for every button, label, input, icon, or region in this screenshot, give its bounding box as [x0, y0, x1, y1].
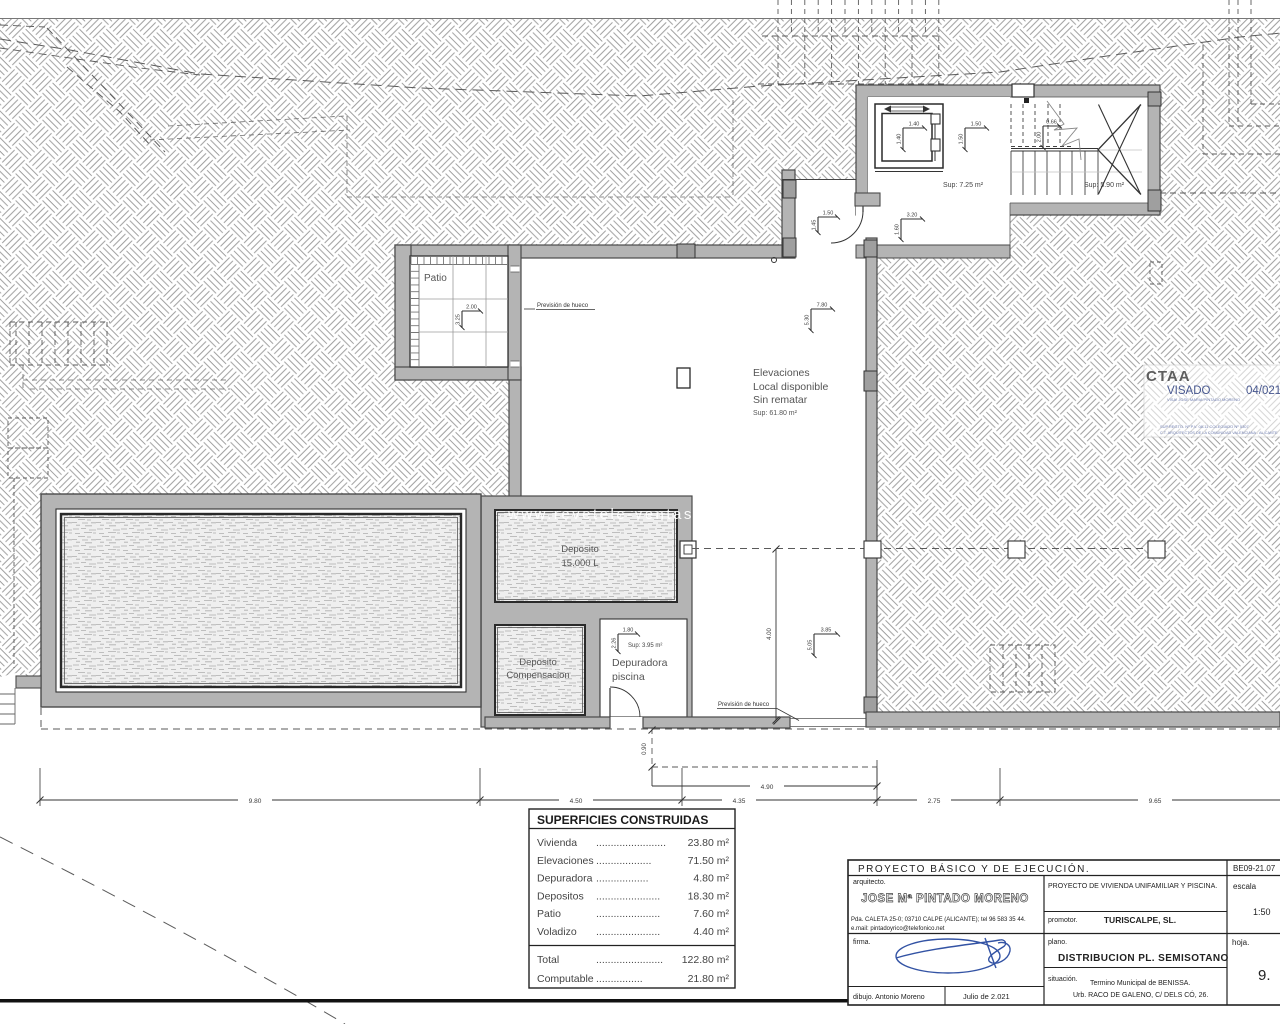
svg-text:................: ................: [596, 973, 643, 985]
svg-text:Voladizo: Voladizo: [537, 926, 577, 938]
svg-text:SUP.REGTO. Nº P.V. 08-11: SUP.REGTO. Nº P.V. 08-11 COLEGIADO Nº 53…: [1160, 424, 1250, 429]
svg-text:Termino Municipal de BENISS: Termino Municipal de BENISSA.: [1090, 980, 1190, 987]
svg-text:Elevaciones: Elevaciones: [537, 855, 594, 867]
svg-text:3.85: 3.85: [821, 628, 832, 634]
svg-text:Previsión de hueco: Previsión de hueco: [537, 303, 589, 309]
svg-text:.......................: .......................: [596, 954, 663, 966]
svg-text:VISADO: VISADO: [1167, 385, 1211, 397]
svg-text:122.80 m²: 122.80 m²: [682, 954, 730, 966]
svg-text:71.50 m²: 71.50 m²: [688, 855, 730, 867]
svg-text:3.20: 3.20: [907, 213, 918, 219]
svg-text:2.26: 2.26: [612, 638, 618, 649]
svg-text:Total: Total: [537, 954, 559, 966]
svg-text:1.50: 1.50: [823, 211, 834, 217]
svg-text:18.30 m²: 18.30 m²: [688, 890, 730, 902]
svg-text:Pda. CALETA 25-0; 03710 CA: Pda. CALETA 25-0; 03710 CALPE (ALICANTE)…: [851, 917, 1026, 923]
svg-text:9.65: 9.65: [1149, 798, 1162, 805]
svg-text:BE09-21.07: BE09-21.07: [1233, 864, 1276, 873]
svg-text:1:50: 1:50: [1253, 907, 1271, 917]
svg-text:........................: ........................: [596, 837, 666, 849]
svg-text:0.90: 0.90: [642, 743, 648, 755]
svg-text:TURISCALPE, SL.: TURISCALPE, SL.: [1104, 915, 1176, 925]
svg-text:1.60: 1.60: [895, 224, 901, 235]
svg-text:2.00: 2.00: [1037, 132, 1043, 143]
svg-text:1.40: 1.40: [909, 122, 920, 128]
svg-text:PROYECTO BÁSICO Y DE EJECU: PROYECTO BÁSICO Y DE EJECUCIÓN.: [858, 862, 1090, 875]
svg-text:1.80: 1.80: [623, 628, 634, 634]
svg-text:3.25: 3.25: [456, 314, 462, 325]
svg-text:4.00: 4.00: [767, 628, 773, 640]
svg-text:SUPERFICIES CONSTRUIDAS: SUPERFICIES CONSTRUIDAS: [537, 813, 708, 827]
svg-text:Compensacion: Compensacion: [506, 670, 569, 681]
svg-text:2.00: 2.00: [466, 305, 477, 311]
svg-text:Elevaciones: Elevaciones: [753, 367, 810, 379]
svg-text:1.40: 1.40: [897, 134, 903, 145]
svg-text:piscina: piscina: [612, 671, 645, 683]
svg-text:Previsión de hueco: Previsión de hueco: [718, 702, 770, 708]
svg-text:9.80: 9.80: [249, 798, 262, 805]
svg-text:1.50: 1.50: [971, 122, 982, 128]
svg-text:VISA! JOSE MARIA PINTADO MOREN: VISA! JOSE MARIA PINTADO MORENO: [1167, 397, 1240, 402]
svg-text:Sin rematar: Sin rematar: [753, 394, 808, 406]
svg-text:4.35: 4.35: [733, 798, 746, 805]
svg-text:21.80 m²: 21.80 m²: [688, 973, 730, 985]
svg-text:JOSE Mª PINTADO MORENO: JOSE Mª PINTADO MORENO: [861, 893, 1029, 905]
svg-text:7.80: 7.80: [817, 303, 828, 309]
svg-text:arquitecto.: arquitecto.: [853, 879, 886, 886]
svg-text:Sup: 61.80 m²: Sup: 61.80 m²: [753, 410, 798, 417]
svg-text:promotor.: promotor.: [1048, 917, 1078, 924]
svg-text:PROYECTO DE VIVIENDA UNIFAM: PROYECTO DE VIVIENDA UNIFAMILIAR Y PISCI…: [1048, 883, 1217, 890]
svg-text:5.05: 5.05: [808, 640, 814, 651]
svg-text:......................: ......................: [596, 908, 660, 920]
svg-text:e.mail: pintadoyrico@telefoni: e.mail: pintadoyrico@telefonico.net: [851, 926, 945, 932]
svg-text:hoja.: hoja.: [1232, 938, 1249, 947]
svg-text:Sup: 5.90 m²: Sup: 5.90 m²: [1084, 182, 1125, 189]
svg-text:situación.: situación.: [1048, 976, 1078, 983]
svg-text:dibujo. Antonio Moreno: dibujo. Antonio Moreno: [853, 994, 925, 1001]
svg-text:CTAA: CTAA: [1146, 368, 1191, 385]
svg-text:Vivienda: Vivienda: [537, 837, 577, 849]
svg-text:23.80 m²: 23.80 m²: [688, 837, 730, 849]
svg-text:Urb. RACO DE GALENO, C/ D: Urb. RACO DE GALENO, C/ DELS CÓ, 26.: [1073, 990, 1208, 999]
svg-text:Patio: Patio: [537, 908, 561, 920]
svg-text:...................: ...................: [596, 855, 651, 867]
svg-text:0.66: 0.66: [1046, 120, 1057, 126]
svg-text:......................: ......................: [596, 890, 660, 902]
svg-text:www.revetele-ventas: www.revetele-ventas: [507, 506, 694, 523]
svg-text:..................: ..................: [596, 873, 649, 885]
svg-text:04/021: 04/021: [1246, 385, 1280, 397]
svg-text:Deposito: Deposito: [519, 657, 557, 668]
svg-text:15.000 L: 15.000 L: [562, 558, 599, 569]
svg-text:5.30: 5.30: [805, 315, 811, 326]
svg-text:Depositos: Depositos: [537, 890, 584, 902]
svg-text:1.50: 1.50: [959, 134, 965, 145]
svg-text:DISTRIBUCION PL. SEMISOTANO: DISTRIBUCION PL. SEMISOTANO: [1058, 953, 1229, 964]
svg-text:7.60 m²: 7.60 m²: [693, 908, 729, 920]
svg-text:Patio: Patio: [424, 273, 447, 284]
svg-text:escala: escala: [1233, 882, 1257, 891]
svg-text:2.75: 2.75: [928, 798, 941, 805]
svg-text:firma.: firma.: [853, 939, 871, 946]
svg-text:Depuradora: Depuradora: [612, 657, 668, 669]
svg-text:1.45: 1.45: [812, 220, 818, 231]
svg-text:Julio de 2.021: Julio de 2.021: [963, 992, 1010, 1001]
svg-text:9.: 9.: [1258, 967, 1271, 984]
svg-text:Sup: 7.25 m²: Sup: 7.25 m²: [943, 182, 984, 189]
svg-text:4.90: 4.90: [761, 784, 774, 791]
svg-text:Sup: 3.95 m²: Sup: 3.95 m²: [628, 643, 662, 649]
svg-text:C.T. ARQUITECTOS DE LA COMUNID: C.T. ARQUITECTOS DE LA COMUNIDAD VALENCI…: [1160, 431, 1278, 435]
svg-text:......................: ......................: [596, 926, 660, 938]
svg-text:Depuradora: Depuradora: [537, 873, 593, 885]
svg-text:Deposito: Deposito: [561, 544, 599, 555]
svg-text:Computable: Computable: [537, 973, 594, 985]
svg-text:Local disponible: Local disponible: [753, 381, 828, 393]
svg-text:4.40 m²: 4.40 m²: [693, 926, 729, 938]
svg-text:4.50: 4.50: [570, 798, 583, 805]
svg-text:plano.: plano.: [1048, 939, 1067, 946]
svg-text:4.80 m²: 4.80 m²: [693, 873, 729, 885]
